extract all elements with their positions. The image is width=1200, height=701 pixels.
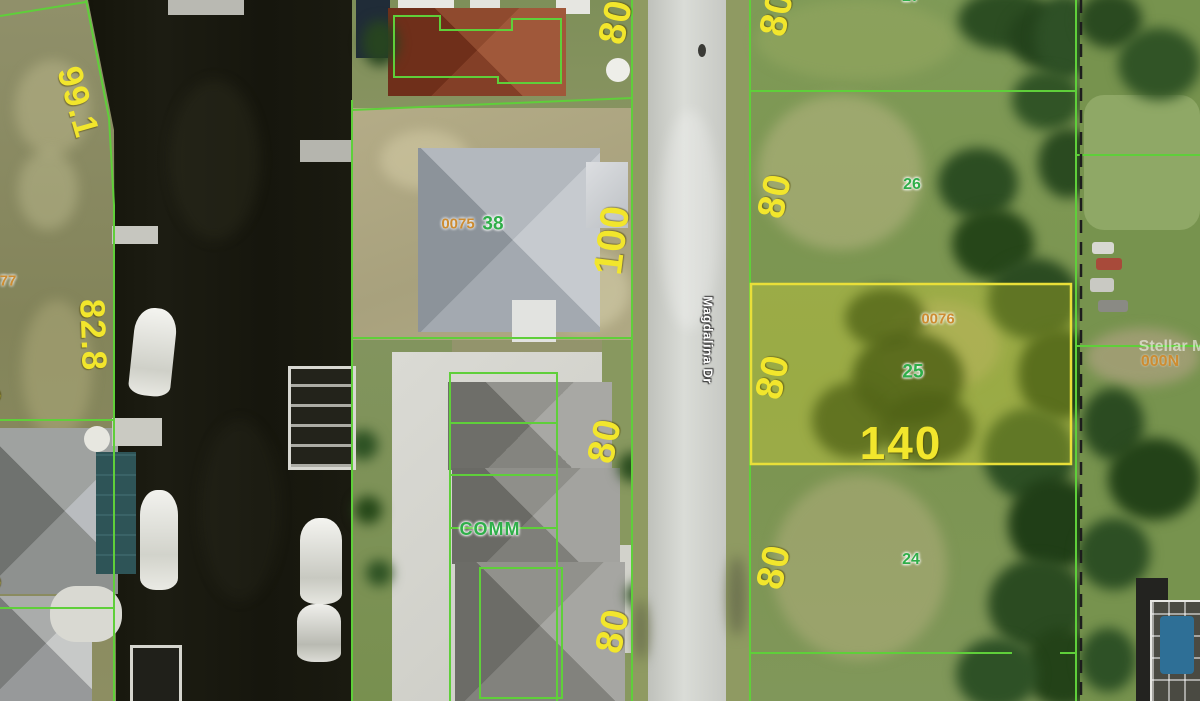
dimension-label-partial: 0 [0, 568, 9, 596]
dimension-label: 80 [754, 0, 800, 40]
lot-number: 25 [902, 363, 923, 382]
dimension-label: 80 [593, 0, 639, 48]
dimension-label: 100 [588, 203, 636, 277]
road-name-label: Magdalina Dr [702, 296, 715, 384]
lot-number: 27 [902, 0, 920, 5]
dimension-label: 82.8 [74, 298, 111, 371]
dimension-label: 80 [752, 170, 798, 221]
parcel-id-partial: 77 [0, 274, 16, 289]
lot-number: 24 [902, 552, 920, 568]
map-labels-layer: 99.1 82.8 0 0 80 100 80 80 80 80 80 80 1… [0, 0, 1200, 701]
dimension-label: 99.1 [51, 63, 105, 142]
aerial-parcel-map: 99.1 82.8 0 0 80 100 80 80 80 80 80 80 1… [0, 0, 1200, 701]
lot-number: 38 [482, 215, 503, 234]
zoning-label: COMM [460, 520, 521, 538]
address-label: 000N [1141, 354, 1179, 370]
dimension-label-partial: 0 [0, 381, 9, 409]
dimension-label: 140 [860, 420, 943, 466]
dimension-label: 80 [582, 415, 628, 466]
dimension-label: 80 [590, 605, 636, 656]
dimension-label: 80 [751, 541, 797, 592]
dimension-label: 80 [750, 351, 796, 402]
parcel-id: 0076 [921, 312, 954, 327]
mls-watermark: Stellar M [1139, 339, 1200, 355]
lot-number: 26 [903, 177, 921, 193]
parcel-id: 0075 [441, 217, 474, 232]
